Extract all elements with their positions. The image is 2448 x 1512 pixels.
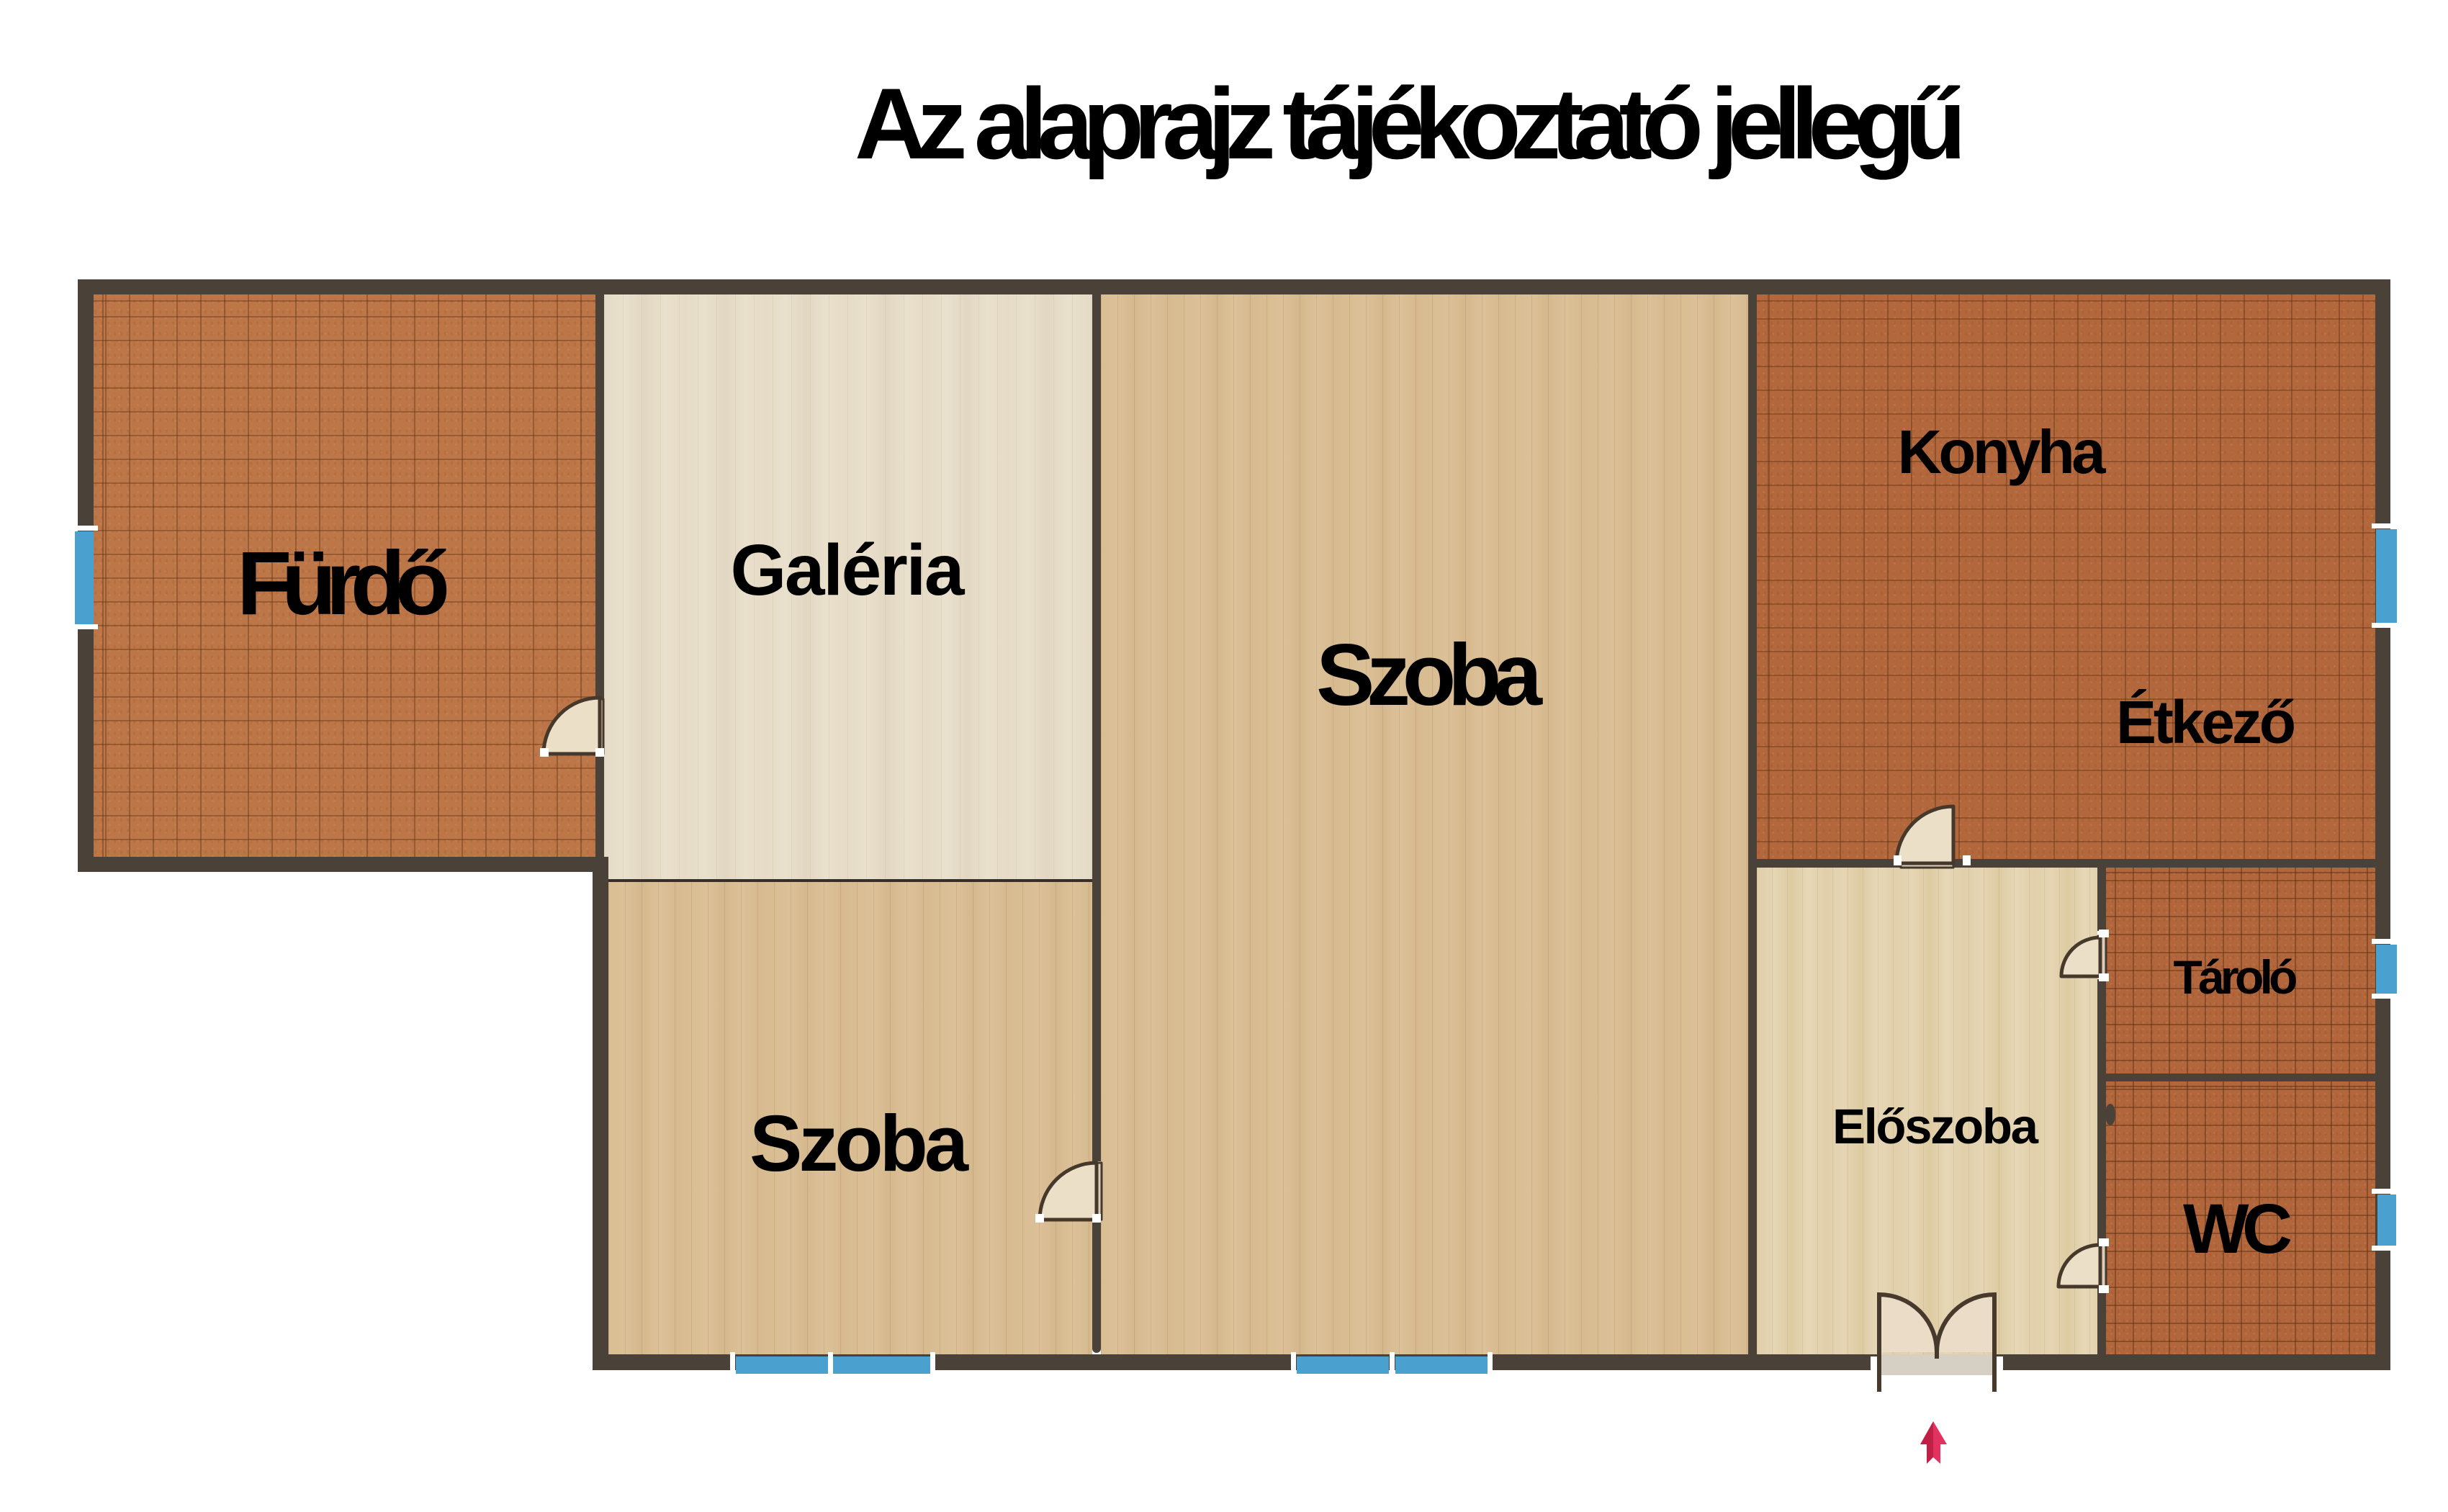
svg-text:Étkező: Étkező (2116, 688, 2296, 756)
svg-text:Konyha: Konyha (1898, 418, 2107, 487)
svg-text:Az alaprajz tájékoztató jelleg: Az alaprajz tájékoztató jellegű (855, 67, 1966, 180)
svg-text:Galéria: Galéria (731, 530, 966, 611)
svg-text:WC: WC (2183, 1189, 2292, 1268)
svg-text:Szoba: Szoba (1316, 626, 1543, 724)
svg-text:Fürdő: Fürdő (237, 534, 450, 634)
svg-text:Szoba: Szoba (750, 1099, 969, 1188)
svg-text:Tároló: Tároló (2174, 950, 2298, 1004)
svg-text:Előszoba: Előszoba (1832, 1099, 2039, 1154)
